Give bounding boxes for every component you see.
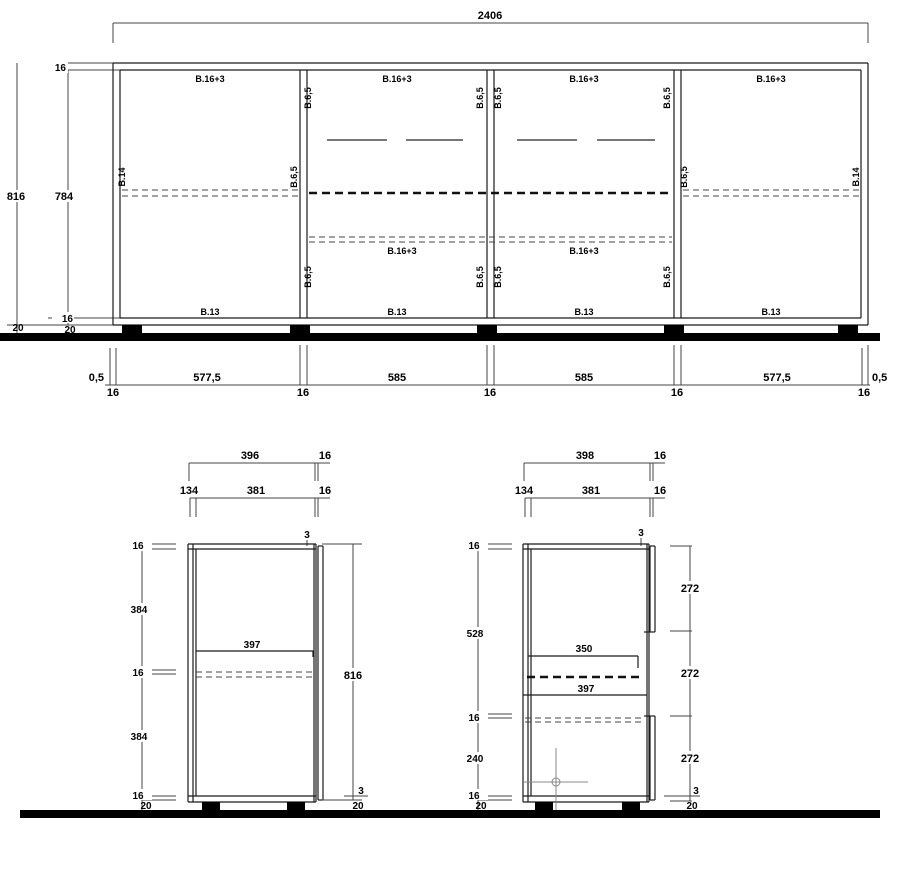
bottom-panel-label-4: B.13 xyxy=(761,307,780,317)
ls-shelf-depth-label: 397 xyxy=(244,640,261,651)
rs-inner-door-label: 16 xyxy=(654,485,666,497)
right-cross-section: 398 16 134 381 16 3 xyxy=(460,450,705,812)
dim-bay-2: 585 xyxy=(388,372,406,384)
rs-feet xyxy=(535,802,640,810)
ls-total-height: 816 3 20 xyxy=(322,544,370,812)
rs-back-label: 134 xyxy=(515,485,534,497)
dim-tick-5: 16 xyxy=(858,387,870,399)
rs-chain-2: 16 xyxy=(468,713,480,724)
rs-chain-3: 240 xyxy=(467,754,484,765)
rs-chain-0: 16 xyxy=(468,541,480,552)
rs-height-chain: 16 528 16 240 16 20 xyxy=(460,539,512,812)
side-panel-label-left: B.14 xyxy=(117,167,127,186)
dim-tick-4: 16 xyxy=(671,387,683,399)
divider-label-2: B.6,5 xyxy=(475,87,485,109)
dim-heights-left: 16 816 784 16 20 20 xyxy=(2,61,120,336)
ls-chain-0: 16 xyxy=(132,541,144,552)
ls-chain-1: 384 xyxy=(131,605,148,616)
hidden-lines xyxy=(122,190,859,242)
bottom-panel-label-1: B.13 xyxy=(200,307,219,317)
top-panel-label-4: B.16+3 xyxy=(756,74,785,84)
dim-plinth-front-label: 20 xyxy=(12,323,24,334)
top-panel-label-3: B.16+3 xyxy=(569,74,598,84)
divider-label-1: B.6,5 xyxy=(303,87,313,109)
divider-label-8: B.6,5 xyxy=(475,266,485,288)
dim-bay-4: 577,5 xyxy=(763,372,791,384)
divider-label-10: B.6,5 xyxy=(662,266,672,288)
dim-tick-3: 16 xyxy=(484,387,496,399)
dim-bay-3: 585 xyxy=(575,372,593,384)
ls-dim-depth: 396 16 134 381 16 xyxy=(180,450,331,517)
divider-label-3: B.6,5 xyxy=(493,87,503,109)
ls-door-gap-bottom: 3 xyxy=(358,786,364,797)
top-panel-label-1: B.16+3 xyxy=(195,74,224,84)
ls-chain-3: 384 xyxy=(131,732,148,743)
part-labels: B.16+3 B.16+3 B.16+3 B.16+3 B.16+3 B.16+… xyxy=(117,74,861,317)
divider-label-9: B.6,5 xyxy=(493,266,503,288)
dim-tick-1: 16 xyxy=(107,387,119,399)
rs-carcass: 350 397 xyxy=(523,544,655,812)
technical-drawing: 2406 16 816 784 16 20 20 xyxy=(0,0,902,871)
rs-front-height-2: 272 xyxy=(681,753,699,765)
ls-door-gap-top: 3 xyxy=(304,530,310,541)
dim-height-carcass-label: 784 xyxy=(55,191,74,203)
ls-feet xyxy=(202,802,305,810)
front-elevation: 2406 16 816 784 16 20 20 xyxy=(0,10,887,399)
ls-depth-label: 396 xyxy=(241,450,259,462)
dim-bay-1: 577,5 xyxy=(193,372,221,384)
ls-carcass: 397 xyxy=(188,544,323,802)
ground-line-top xyxy=(0,333,880,341)
ls-chain-2: 16 xyxy=(132,668,144,679)
rs-door-gap-top: 3 xyxy=(638,528,644,539)
rs-door-gap-bottom: 3 xyxy=(693,786,699,797)
feet-and-ground-top xyxy=(0,325,880,341)
ls-height-chain: 16 384 16 384 16 20 xyxy=(124,539,176,812)
left-cross-section: 396 16 134 381 16 3 xyxy=(124,450,370,812)
carcass-outline xyxy=(113,63,868,325)
rs-depth-label: 398 xyxy=(576,450,594,462)
rs-shelf-depth-label: 397 xyxy=(578,684,595,695)
rs-front-height-1: 272 xyxy=(681,668,699,680)
rs-front-heights: 272 272 272 3 20 xyxy=(664,546,705,812)
shelf-label-1: B.16+3 xyxy=(387,246,416,256)
ls-inner-door-label: 16 xyxy=(319,485,331,497)
dim-gap-left: 0,5 xyxy=(89,372,104,384)
top-panel-label-2: B.16+3 xyxy=(382,74,411,84)
bottom-panel-label-2: B.13 xyxy=(387,307,406,317)
divider-label-7: B.6,5 xyxy=(303,266,313,288)
dim-tick-2: 16 xyxy=(297,387,309,399)
ls-inner-label: 381 xyxy=(247,485,265,497)
ground-line-bottom xyxy=(20,810,880,818)
dim-bottom-panel-label: 16 xyxy=(62,314,74,325)
divider-label-6: B.6,5 xyxy=(679,166,689,188)
rs-depth-door-label: 16 xyxy=(654,450,666,462)
ls-back-label: 134 xyxy=(180,485,199,497)
ls-total-height-label: 816 xyxy=(344,670,362,682)
rs-inner-label: 381 xyxy=(582,485,600,497)
shelf-label-2: B.16+3 xyxy=(569,246,598,256)
dim-height-total-label: 816 xyxy=(7,191,25,203)
rs-chain-1: 528 xyxy=(467,629,484,640)
rs-rail-depth-label: 350 xyxy=(576,644,593,655)
ls-depth-door-label: 16 xyxy=(319,450,331,462)
side-panel-label-right: B.14 xyxy=(851,167,861,186)
dim-total-width-label: 2406 xyxy=(478,10,502,22)
rs-front-height-0: 272 xyxy=(681,583,699,595)
dim-gap-right: 0,5 xyxy=(872,372,887,384)
cad-canvas: 2406 16 816 784 16 20 20 xyxy=(0,0,902,871)
divider-label-4: B.6,5 xyxy=(662,87,672,109)
dim-top-panel-label: 16 xyxy=(55,63,67,74)
divider-label-5: B.6,5 xyxy=(289,166,299,188)
dim-total-width: 2406 xyxy=(113,10,868,43)
bottom-panel-label-3: B.13 xyxy=(574,307,593,317)
dim-bottom-chain: 0,5 577,5 585 585 577,5 0,5 16 16 16 16 … xyxy=(89,345,888,399)
rs-dim-depth: 398 16 134 381 16 xyxy=(515,450,666,517)
